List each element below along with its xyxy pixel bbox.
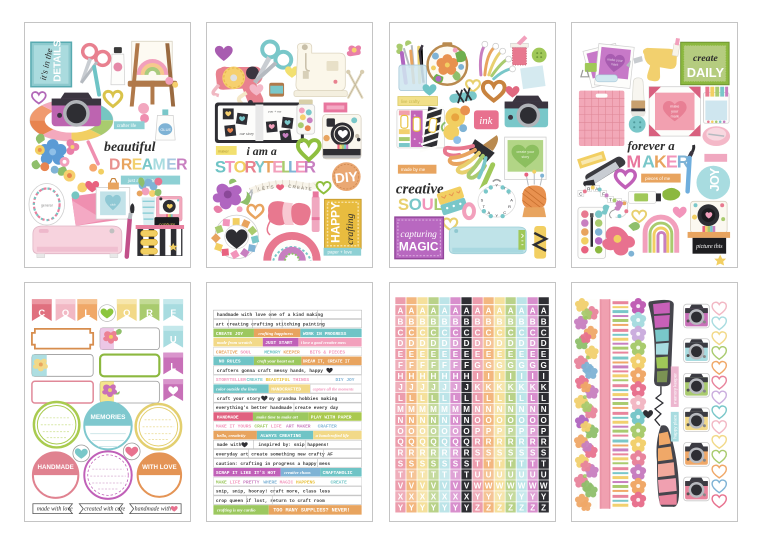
svg-text:G: G — [496, 361, 502, 370]
svg-text:S: S — [464, 460, 470, 469]
svg-text:R: R — [176, 157, 188, 174]
svg-text:Q: Q — [419, 438, 425, 447]
svg-text:Y: Y — [508, 492, 514, 501]
svg-text:E: E — [530, 350, 536, 359]
svg-text:Q: Q — [397, 438, 403, 447]
svg-text:O: O — [474, 416, 480, 425]
svg-text:P: P — [519, 427, 525, 436]
svg-text:C: C — [409, 328, 415, 337]
svg-text:R: R — [508, 204, 511, 209]
svg-text:L: L — [508, 394, 513, 403]
svg-text:Z: Z — [541, 503, 546, 512]
svg-text:F: F — [464, 361, 469, 370]
svg-text:U: U — [541, 471, 547, 480]
svg-text:picture this: picture this — [695, 244, 723, 250]
svg-text:U: U — [530, 471, 536, 480]
svg-text:W: W — [507, 482, 515, 491]
svg-text:O: O — [419, 427, 425, 436]
svg-text:N: N — [420, 416, 426, 425]
svg-text:Z: Z — [508, 503, 513, 512]
svg-text:crafter life: crafter life — [117, 123, 137, 128]
svg-text:H: H — [453, 372, 459, 381]
svg-text:R: R — [431, 449, 437, 458]
svg-text:C: C — [453, 328, 459, 337]
svg-text:G: G — [507, 361, 513, 370]
svg-text:your: your — [671, 109, 679, 113]
svg-text:N: N — [508, 405, 514, 414]
svg-text:S: S — [541, 449, 547, 458]
svg-text:C: C — [431, 328, 437, 337]
svg-text:M: M — [397, 405, 404, 414]
svg-text:U: U — [486, 471, 492, 480]
svg-text:DIY: DIY — [334, 168, 359, 186]
svg-text:T: T — [508, 460, 513, 469]
svg-text:A: A — [510, 197, 513, 202]
svg-text:B: B — [475, 317, 481, 326]
svg-text:T: T — [464, 471, 469, 480]
svg-text:S: S — [530, 449, 536, 458]
svg-text:made with love: made with love — [37, 507, 73, 513]
svg-text:D: D — [519, 339, 525, 348]
svg-text:E: E — [519, 350, 525, 359]
svg-text:K: K — [508, 383, 514, 392]
svg-text:G: G — [518, 361, 524, 370]
svg-text:J: J — [453, 383, 458, 392]
svg-text:N: N — [409, 416, 415, 425]
svg-text:handmade with: handmade with — [135, 507, 171, 513]
svg-text:S: S — [475, 449, 481, 458]
svg-text:R: R — [453, 449, 459, 458]
svg-text:K: K — [497, 383, 503, 392]
svg-text:snip, snip, hooray! craft mor: snip, snip, hooray! craft more, class le… — [216, 489, 330, 495]
svg-text:craft your heart out: craft your heart out — [257, 359, 294, 364]
svg-text:H: H — [420, 372, 426, 381]
svg-text:R: R — [409, 449, 415, 458]
svg-text:Y: Y — [495, 213, 498, 218]
svg-text:HANDMADE: HANDMADE — [37, 464, 73, 471]
svg-text:N: N — [453, 416, 459, 425]
svg-text:E: E — [497, 350, 503, 359]
svg-text:P: P — [508, 427, 514, 436]
svg-text:i am a: i am a — [247, 144, 277, 158]
svg-text:art creating crafting stitch: art creating crafting stitching painting — [216, 321, 325, 327]
svg-text:D: D — [398, 339, 404, 348]
svg-text:K: K — [541, 383, 547, 392]
svg-text:B: B — [497, 317, 503, 326]
svg-text:F: F — [409, 361, 414, 370]
svg-text:C: C — [420, 328, 426, 337]
svg-text:M: M — [452, 405, 459, 414]
svg-text:caution: crafting in progress: caution: crafting in progress a happy me… — [216, 461, 330, 467]
svg-text:S: S — [508, 449, 514, 458]
svg-text:M: M — [419, 405, 426, 414]
svg-text:O: O — [485, 416, 491, 425]
svg-text:T: T — [541, 460, 546, 469]
svg-text:creative chaos: creative chaos — [284, 470, 311, 475]
svg-text:R: R — [508, 438, 514, 447]
svg-text:F: F — [431, 361, 436, 370]
svg-text:NO RULES: NO RULES — [219, 359, 241, 365]
svg-text:E: E — [409, 350, 415, 359]
svg-text:N: N — [530, 405, 536, 414]
svg-text:M: M — [463, 405, 470, 414]
svg-text:Y: Y — [475, 492, 481, 501]
svg-text:N: N — [541, 405, 547, 414]
svg-text:J: J — [442, 383, 447, 392]
svg-text:F: F — [453, 361, 458, 370]
svg-text:U: U — [497, 471, 503, 480]
svg-text:S: S — [442, 460, 448, 469]
svg-text:O: O — [463, 427, 469, 436]
svg-text:N: N — [475, 405, 481, 414]
svg-text:D: D — [486, 339, 492, 348]
svg-text:A: A — [541, 306, 547, 315]
svg-text:L: L — [409, 394, 414, 403]
svg-text:S: S — [409, 460, 415, 469]
svg-text:T: T — [453, 471, 458, 480]
svg-text:CRAFTAHOLIC: CRAFTAHOLIC — [323, 470, 353, 476]
svg-text:DETAILS: DETAILS — [53, 40, 64, 82]
svg-text:TOO MANY SUPPLIES? NEVER!: TOO MANY SUPPLIES? NEVER! — [273, 508, 350, 514]
svg-text:ALWAYS CREATING: ALWAYS CREATING — [260, 433, 301, 439]
svg-text:P: P — [541, 427, 547, 436]
svg-text:O: O — [62, 308, 69, 318]
svg-text:B: B — [398, 317, 404, 326]
svg-text:beautiful: beautiful — [104, 139, 156, 154]
svg-text:S: S — [398, 195, 409, 214]
svg-text:B: B — [409, 317, 415, 326]
svg-text:L: L — [541, 394, 546, 403]
svg-text:CRAFTER: CRAFTER — [318, 424, 337, 430]
svg-text:A: A — [464, 306, 470, 315]
svg-text:E: E — [464, 350, 470, 359]
svg-text:i love a good creative mess: i love a good creative mess — [301, 340, 346, 345]
svg-text:A: A — [530, 306, 536, 315]
svg-text:made from scratch: made from scratch — [217, 340, 252, 345]
svg-text:X: X — [453, 492, 459, 501]
svg-text:mark: mark — [671, 114, 679, 118]
svg-text:L: L — [486, 394, 491, 403]
svg-text:K: K — [475, 383, 481, 392]
svg-text:R: R — [475, 438, 481, 447]
svg-text:craft your story: craft your story — [217, 396, 261, 402]
svg-text:S: S — [486, 449, 492, 458]
svg-text:DAILY: DAILY — [687, 65, 725, 80]
svg-text:crafting: crafting — [345, 213, 356, 244]
svg-text:A: A — [142, 157, 153, 174]
svg-text:Z: Z — [519, 503, 524, 512]
svg-text:L: L — [398, 394, 403, 403]
svg-text:J: J — [431, 383, 436, 392]
svg-text:hello, creativity: hello, creativity — [217, 433, 247, 438]
svg-text:B: B — [442, 317, 448, 326]
svg-text:my grandma hobbies making: my grandma hobbies making — [269, 396, 337, 402]
svg-text:DREAM IT, CREATE IT: DREAM IT, CREATE IT — [303, 361, 351, 365]
svg-text:A: A — [442, 306, 448, 315]
svg-text:E: E — [541, 350, 547, 359]
svg-text:T: T — [530, 460, 535, 469]
svg-text:T: T — [519, 460, 524, 469]
svg-text:Q: Q — [430, 438, 436, 447]
svg-text:N: N — [464, 416, 470, 425]
svg-text:L: L — [442, 394, 447, 403]
svg-text:F: F — [398, 361, 403, 370]
svg-text:T: T — [442, 471, 447, 480]
svg-text:H: H — [409, 372, 415, 381]
svg-text:Q: Q — [408, 438, 414, 447]
svg-text:C: C — [508, 328, 514, 337]
svg-text:created with care: created with care — [84, 507, 125, 513]
svg-text:create your: create your — [516, 150, 535, 154]
svg-text:T: T — [483, 204, 486, 209]
svg-text:D: D — [453, 339, 459, 348]
svg-text:C: C — [442, 328, 448, 337]
svg-text:C: C — [398, 328, 404, 337]
svg-text:J: J — [464, 383, 469, 392]
svg-text:U: U — [422, 195, 434, 214]
svg-text:E: E — [475, 350, 481, 359]
svg-text:Y: Y — [420, 503, 426, 512]
svg-text:B: B — [530, 317, 536, 326]
svg-text:story: story — [522, 155, 530, 159]
svg-text:I: I — [476, 372, 478, 381]
svg-text:V: V — [464, 482, 470, 491]
svg-text:D: D — [464, 339, 470, 348]
svg-text:I: I — [498, 372, 500, 381]
svg-text:HAPPY: HAPPY — [328, 202, 342, 243]
svg-text:T: T — [475, 460, 480, 469]
svg-text:T: T — [420, 471, 425, 480]
svg-text:R: R — [587, 186, 590, 191]
svg-text:M: M — [430, 405, 437, 414]
svg-text:general: general — [41, 203, 53, 207]
svg-text:A: A — [453, 306, 459, 315]
svg-text:X: X — [409, 492, 415, 501]
svg-text:SCRAP IT LIKE IT'S HOT: SCRAP IT LIKE IT'S HOT — [216, 470, 276, 476]
svg-text:L: L — [519, 394, 524, 403]
svg-text:O: O — [452, 427, 458, 436]
svg-text:W: W — [496, 482, 504, 491]
svg-text:B: B — [508, 317, 514, 326]
svg-text:X: X — [420, 492, 426, 501]
svg-text:pieces of me: pieces of me — [645, 176, 671, 181]
svg-text:U: U — [170, 335, 177, 345]
svg-text:H: H — [464, 372, 470, 381]
svg-text:STORYTELLER: STORYTELLER — [216, 377, 246, 383]
svg-text:MAKE LIFE PRETTY: MAKE LIFE PRETTY — [216, 479, 260, 485]
svg-text:A: A — [431, 306, 437, 315]
svg-text:N: N — [497, 405, 503, 414]
svg-text:R: R — [497, 438, 503, 447]
svg-text:H: H — [398, 372, 404, 381]
svg-text:L: L — [170, 361, 176, 371]
svg-text:inspired by: snip happens!: inspired by: snip happens! — [258, 442, 329, 448]
svg-text:T: T — [398, 471, 403, 480]
svg-text:color outside the lines: color outside the lines — [216, 387, 257, 392]
svg-text:C: C — [519, 328, 525, 337]
svg-text:make: make — [670, 104, 679, 108]
svg-text:DIY JOY: DIY JOY — [335, 377, 354, 383]
svg-text:Y: Y — [519, 492, 525, 501]
svg-text:E: E — [431, 350, 437, 359]
svg-text:WHERE MAGIC HAPPENS: WHERE MAGIC HAPPENS — [263, 479, 315, 485]
svg-text:X: X — [464, 492, 470, 501]
svg-text:O: O — [409, 195, 422, 214]
svg-text:N: N — [519, 405, 525, 414]
svg-text:S: S — [398, 460, 404, 469]
svg-text:Y: Y — [398, 503, 404, 512]
svg-text:E: E — [420, 350, 426, 359]
svg-text:R: R — [442, 449, 448, 458]
svg-text:O: O — [441, 427, 447, 436]
svg-text:A: A — [486, 306, 492, 315]
svg-text:V: V — [431, 482, 437, 491]
svg-text:MAKE IT YOURS: MAKE IT YOURS — [216, 424, 252, 430]
svg-text:CREATE JOY: CREATE JOY — [216, 331, 243, 337]
svg-text:MEMORIES: MEMORIES — [91, 414, 127, 421]
svg-text:made by me: made by me — [401, 167, 426, 172]
svg-text:S: S — [497, 449, 503, 458]
svg-text:D: D — [420, 339, 426, 348]
svg-text:MEMORY KEEPER: MEMORY KEEPER — [264, 349, 300, 355]
svg-text:X: X — [442, 492, 448, 501]
svg-text:N: N — [486, 405, 492, 414]
svg-text:made with: made with — [217, 442, 242, 448]
svg-text:V: V — [453, 482, 459, 491]
svg-text:U: U — [519, 471, 525, 480]
svg-text:GLUE: GLUE — [160, 127, 171, 132]
svg-text:CREATE: CREATE — [331, 479, 348, 485]
svg-text:A: A — [508, 306, 514, 315]
svg-text:M: M — [152, 157, 165, 174]
svg-text:WORK IN PROGRESS: WORK IN PROGRESS — [303, 331, 347, 337]
svg-text:HANDCRAFTED: HANDCRAFTED — [271, 387, 301, 393]
svg-text:MAGIC: MAGIC — [399, 240, 439, 254]
svg-text:R: R — [146, 308, 153, 318]
svg-text:create: create — [693, 53, 718, 64]
svg-text:M: M — [408, 405, 415, 414]
svg-text:B: B — [464, 317, 470, 326]
svg-text:Z: Z — [497, 503, 502, 512]
svg-text:Q: Q — [441, 438, 447, 447]
svg-text:L: L — [84, 308, 90, 318]
svg-text:W: W — [518, 482, 526, 491]
svg-text:live crafty: live crafty — [401, 99, 421, 104]
svg-text:U: U — [508, 471, 514, 480]
svg-text:everything's better handmade c: everything's better handmade create ever… — [216, 405, 339, 411]
svg-text:CREATE BEAUTIFUL THINGS: CREATE BEAUTIFUL THINGS — [247, 377, 310, 383]
svg-text:P: P — [530, 427, 536, 436]
svg-text:B: B — [486, 317, 492, 326]
svg-text:S: S — [453, 460, 459, 469]
svg-text:ink: ink — [479, 115, 492, 127]
svg-text:Q: Q — [463, 438, 469, 447]
svg-text:C: C — [464, 328, 470, 337]
svg-text:P: P — [486, 427, 492, 436]
svg-text:club: club — [110, 202, 116, 206]
svg-text:everyday art create something: everyday art create something new crafty… — [216, 452, 333, 458]
svg-text:O: O — [430, 427, 436, 436]
svg-text:H: H — [442, 372, 448, 381]
svg-text:T: T — [409, 471, 414, 480]
svg-text:CREATIVE SOUL: CREATIVE SOUL — [216, 349, 252, 355]
svg-text:O: O — [540, 416, 546, 425]
svg-text:T: T — [431, 471, 436, 480]
svg-text:X: X — [398, 492, 404, 501]
svg-text:Y: Y — [495, 182, 498, 187]
svg-text:I: I — [520, 372, 522, 381]
svg-text:Y: Y — [453, 503, 459, 512]
svg-text:E: E — [486, 350, 492, 359]
svg-text:B: B — [541, 317, 547, 326]
svg-text:JUST START: JUST START — [265, 340, 292, 346]
svg-text:Q: Q — [452, 438, 458, 447]
svg-text:C: C — [486, 328, 492, 337]
svg-text:maker: maker — [218, 148, 230, 153]
svg-text:crafting is my cardio: crafting is my cardio — [217, 508, 256, 513]
svg-text:T: T — [497, 460, 502, 469]
svg-text:M: M — [626, 152, 640, 172]
svg-text:W: W — [529, 482, 537, 491]
svg-text:T: T — [609, 197, 612, 202]
svg-text:L: L — [530, 394, 535, 403]
svg-text:capturing: capturing — [400, 230, 437, 240]
svg-text:PLAY WITH PAPER: PLAY WITH PAPER — [311, 414, 352, 420]
svg-text:Y: Y — [431, 503, 437, 512]
svg-text:A: A — [420, 306, 426, 315]
svg-text:U: U — [475, 471, 481, 480]
svg-text:L: L — [475, 394, 480, 403]
svg-text:B: B — [420, 317, 426, 326]
svg-text:Z: Z — [475, 503, 480, 512]
svg-text:A: A — [519, 306, 525, 315]
svg-text:Z: Z — [486, 503, 491, 512]
svg-text:F: F — [170, 308, 176, 318]
svg-text:F: F — [420, 361, 425, 370]
svg-text:BITS & PIECES: BITS & PIECES — [310, 349, 346, 355]
svg-text:S: S — [519, 449, 525, 458]
svg-text:L: L — [420, 394, 425, 403]
svg-text:you + me: you + me — [267, 109, 281, 113]
svg-text:O: O — [123, 308, 130, 318]
svg-text:R: R — [398, 449, 404, 458]
svg-text:R: R — [530, 438, 536, 447]
svg-text:O: O — [507, 416, 513, 425]
svg-text:H: H — [431, 372, 437, 381]
svg-text:A: A — [475, 306, 481, 315]
svg-text:our story: our story — [240, 131, 255, 136]
svg-text:T: T — [486, 460, 491, 469]
svg-text:O: O — [530, 416, 536, 425]
svg-text:A: A — [398, 306, 404, 315]
svg-text:C: C — [38, 308, 45, 318]
svg-text:V: V — [442, 482, 448, 491]
svg-text:F: F — [442, 361, 447, 370]
svg-text:M: M — [441, 405, 448, 414]
svg-text:V: V — [409, 482, 415, 491]
svg-text:HANDMADE: HANDMADE — [217, 414, 239, 420]
svg-text:N: N — [398, 416, 404, 425]
svg-text:B: B — [431, 317, 437, 326]
svg-text:S: S — [481, 197, 484, 202]
svg-text:C: C — [541, 328, 547, 337]
svg-text:S: S — [431, 460, 437, 469]
svg-text:capture all the moments: capture all the moments — [313, 387, 354, 392]
svg-text:J: J — [420, 383, 425, 392]
svg-text:C: C — [530, 328, 536, 337]
svg-text:JOY: JOY — [707, 167, 722, 191]
svg-text:D: D — [530, 339, 536, 348]
